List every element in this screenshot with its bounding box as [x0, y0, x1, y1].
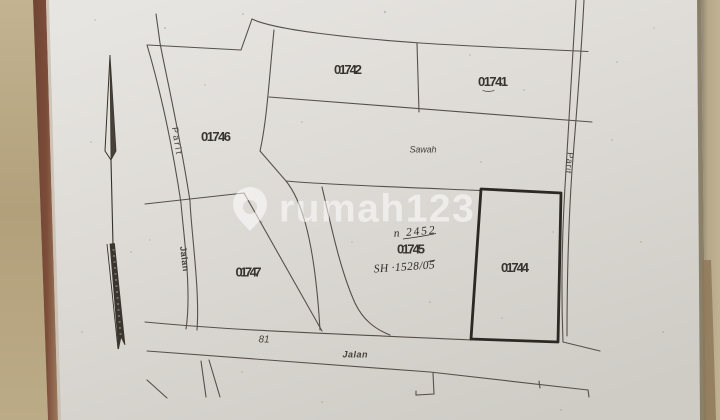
svg-text:01744: 01744: [501, 260, 530, 275]
svg-text:Jalan: Jalan: [343, 350, 369, 360]
svg-text:rumah123: rumah123: [279, 188, 475, 231]
svg-text:Sawah: Sawah: [410, 145, 437, 155]
svg-text:01747: 01747: [236, 265, 262, 280]
svg-text:01741: 01741: [478, 74, 508, 89]
svg-text:81: 81: [258, 335, 269, 346]
svg-text:01745: 01745: [397, 242, 425, 257]
svg-text:01746: 01746: [201, 129, 231, 144]
svg-text:01742: 01742: [334, 62, 362, 77]
